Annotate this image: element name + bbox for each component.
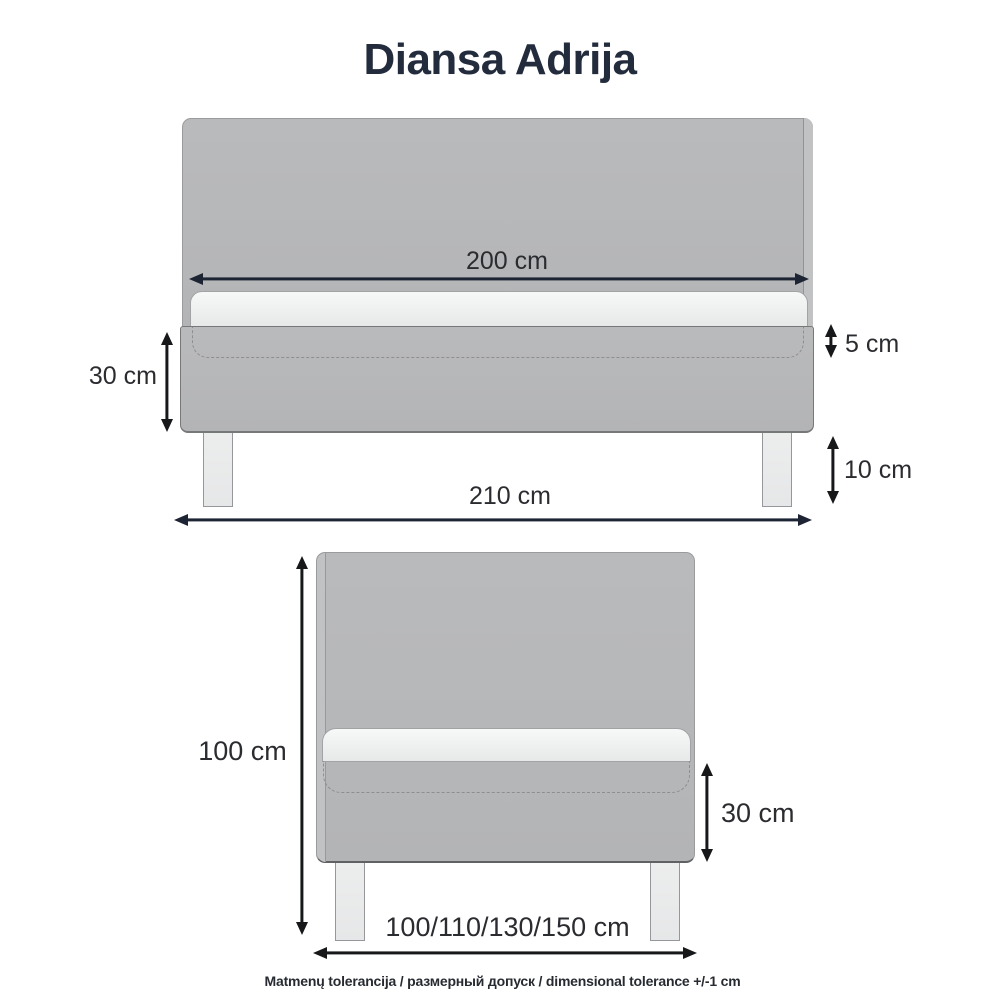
mattress-front	[322, 728, 691, 762]
topper-dashed-outline-front	[323, 761, 690, 793]
dim-arrow-leg-height	[826, 436, 840, 504]
bed-leg-left-side	[203, 431, 233, 507]
front-panel	[316, 552, 695, 863]
dim-arrow-mattress-length	[189, 272, 809, 286]
dimension-diagram-page: Diansa Adrija 200 cm 30 cm 5 cm 10 cm	[0, 0, 1000, 1000]
dim-arrow-topper-thickness	[824, 324, 838, 358]
dim-label-width-options: 100/110/130/150 cm	[355, 911, 660, 943]
dim-label-leg-height: 10 cm	[844, 454, 944, 486]
dim-arrow-total-height	[295, 556, 309, 935]
arrow-shaft	[165, 337, 168, 427]
arrow-shaft	[831, 441, 834, 499]
arrow-shaft	[300, 561, 303, 930]
arrow-shaft	[705, 768, 708, 857]
page-title: Diansa Adrija	[0, 34, 1000, 86]
front-panel-edge-strip	[317, 553, 326, 862]
tolerance-note: Matmenų tolerancija / размерный допуск /…	[240, 972, 765, 990]
dim-arrow-base-height-side	[160, 332, 174, 432]
dim-label-total-height: 100 cm	[185, 735, 300, 767]
dim-arrow-total-length	[174, 513, 812, 527]
dim-arrow-width-options	[313, 946, 697, 960]
arrow-shaft	[318, 951, 692, 954]
arrow-shaft	[179, 518, 807, 521]
dim-label-total-length: 210 cm	[430, 480, 590, 512]
dim-label-base-height-side: 30 cm	[52, 360, 157, 392]
dim-label-topper-thickness: 5 cm	[845, 328, 935, 360]
bed-leg-right-side	[762, 431, 792, 507]
arrow-shaft	[829, 329, 832, 353]
dim-label-base-height-front: 30 cm	[721, 797, 816, 829]
dim-arrow-base-height-front	[700, 763, 714, 862]
arrow-shaft	[194, 277, 804, 280]
topper-dashed-outline-side	[192, 327, 804, 358]
mattress-side	[190, 291, 808, 327]
